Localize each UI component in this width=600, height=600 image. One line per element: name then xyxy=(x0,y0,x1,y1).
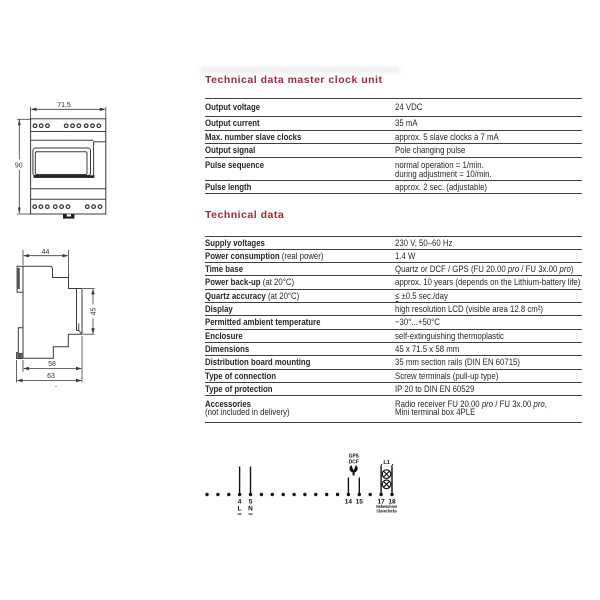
svg-text:58: 58 xyxy=(48,361,56,368)
svg-text:45: 45 xyxy=(91,308,98,316)
svg-text:71,5: 71,5 xyxy=(57,102,71,109)
svg-text:44: 44 xyxy=(42,249,50,256)
svg-text:14: 14 xyxy=(345,499,353,506)
svg-text:15: 15 xyxy=(356,499,364,506)
svg-text:90: 90 xyxy=(15,163,23,170)
svg-text:5: 5 xyxy=(249,499,253,506)
svg-text:N: N xyxy=(248,506,253,513)
svg-text:L: L xyxy=(238,506,242,513)
svg-text:4: 4 xyxy=(238,499,242,506)
svg-text:Slaveclocks: Slaveclocks xyxy=(376,509,397,514)
svg-text:63: 63 xyxy=(47,373,55,380)
svg-text:L1: L1 xyxy=(383,460,390,466)
